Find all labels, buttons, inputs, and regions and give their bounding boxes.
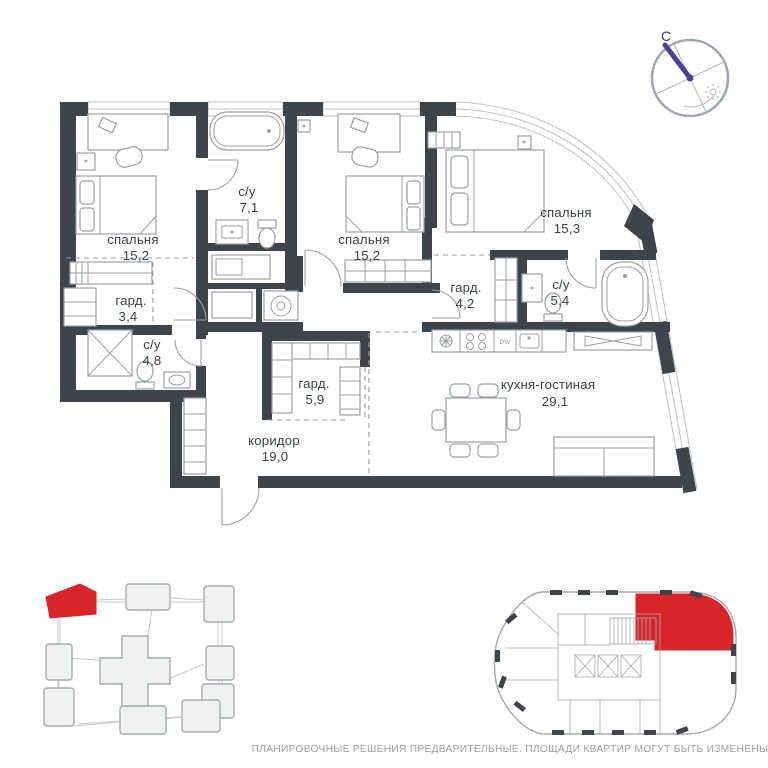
svg-text:спальня: спальня xyxy=(107,232,158,247)
sun-icon xyxy=(705,84,721,100)
site-plan-diagram xyxy=(44,584,234,734)
sconce-icon xyxy=(298,120,310,132)
door-bathroom-3 xyxy=(566,258,596,288)
svg-text:спальня: спальня xyxy=(540,205,591,220)
room-label-wardrobe-1: гард. 3,4 xyxy=(115,293,146,324)
sconce-icon xyxy=(518,136,531,149)
svg-text:с/у: с/у xyxy=(552,277,570,292)
disclaimer-text: ПЛАНИРОВОЧНЫЕ РЕШЕНИЯ ПРЕДВАРИТЕЛЬНЫЕ. П… xyxy=(252,744,768,755)
dining-table-icon xyxy=(432,384,520,457)
door-bathroom-2 xyxy=(175,340,201,366)
svg-text:4,8: 4,8 xyxy=(143,353,162,368)
bed-icon xyxy=(346,176,424,232)
svg-text:19,0: 19,0 xyxy=(262,449,288,464)
door-bathroom-1 xyxy=(208,160,238,190)
sink-icon xyxy=(216,220,248,244)
sink-icon xyxy=(522,274,542,302)
svg-text:с/у: с/у xyxy=(238,184,256,199)
wardrobe-shelves-icon xyxy=(345,260,431,282)
svg-text:с/у: с/у xyxy=(143,337,161,352)
kitchen-counter: DW xyxy=(432,330,566,352)
svg-text:кухня-гостиная: кухня-гостиная xyxy=(501,377,595,392)
wardrobe-shelves-icon xyxy=(428,132,460,148)
sofa-icon xyxy=(554,437,654,476)
bed-icon xyxy=(76,176,156,234)
washing-machine-icon xyxy=(264,291,298,320)
dishwasher-label: DW xyxy=(500,339,512,346)
door-bedroom-2 xyxy=(305,250,341,286)
apartment-plan: DW xyxy=(60,102,697,525)
room-label-bedroom-2: спальня 15,2 xyxy=(338,232,389,263)
svg-text:гард.: гард. xyxy=(115,293,146,308)
sink-icon xyxy=(164,372,190,388)
floorplan-page: С xyxy=(0,0,768,768)
shower-icon xyxy=(88,330,132,376)
svg-text:29,1: 29,1 xyxy=(542,394,568,409)
bathtub-icon xyxy=(210,112,284,150)
svg-text:15,3: 15,3 xyxy=(554,221,580,236)
highlighted-building xyxy=(46,584,96,618)
svg-text:3,4: 3,4 xyxy=(119,309,138,324)
plan-svg: С xyxy=(0,0,768,768)
room-label-wardrobe-2: гард. 4,2 xyxy=(450,280,481,311)
desk-icon xyxy=(88,114,168,169)
floor-plate-diagram xyxy=(495,590,737,735)
svg-text:4,2: 4,2 xyxy=(456,296,475,311)
svg-text:7,1: 7,1 xyxy=(240,200,259,215)
svg-text:гард.: гард. xyxy=(450,280,481,295)
compass-needle-icon xyxy=(665,45,690,78)
svg-text:коридор: коридор xyxy=(248,433,300,448)
svg-text:15,2: 15,2 xyxy=(123,248,149,263)
svg-text:5,4: 5,4 xyxy=(551,293,570,308)
radiator-icon xyxy=(574,332,652,350)
desk-icon xyxy=(338,114,400,169)
center-building xyxy=(100,636,170,706)
room-label-corridor: коридор 19,0 xyxy=(248,433,300,464)
room-label-kitchen-living: кухня-гостиная 29,1 xyxy=(501,377,595,409)
room-label-bathroom-2: с/у 4,8 xyxy=(143,337,162,368)
bathtub-icon xyxy=(602,262,648,326)
bed-icon xyxy=(446,150,544,232)
room-label-bedroom-3: спальня 15,3 xyxy=(540,205,591,236)
room-label-bathroom-3: с/у 5,4 xyxy=(551,277,570,308)
wardrobe-shelves-icon xyxy=(495,258,517,322)
svg-text:гард.: гард. xyxy=(298,376,329,391)
vent-icon xyxy=(440,335,452,347)
svg-text:спальня: спальня xyxy=(338,232,389,247)
compass-north-label: С xyxy=(661,28,671,44)
room-label-wardrobe-3: гард. 5,9 xyxy=(298,376,329,407)
svg-text:5,9: 5,9 xyxy=(306,392,325,407)
compass: С xyxy=(652,28,728,116)
nightstand-icon xyxy=(77,153,95,170)
toilet-icon xyxy=(258,220,276,248)
svg-text:15,2: 15,2 xyxy=(354,248,380,263)
closet-icon xyxy=(184,398,206,474)
room-label-bathroom-1: с/у 7,1 xyxy=(238,184,258,215)
entrance-door xyxy=(222,488,259,525)
